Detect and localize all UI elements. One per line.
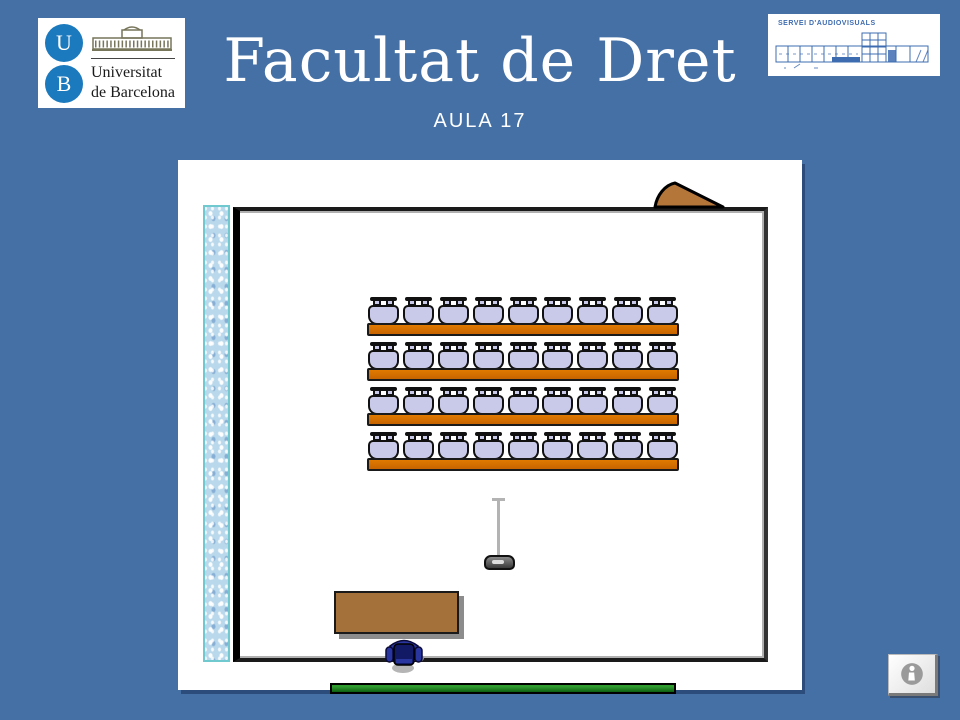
teacher-desk: [334, 591, 459, 634]
slide: { "header": { "ub_logo": { "initials": […: [0, 0, 960, 720]
student-chair: [508, 342, 539, 370]
student-chair: [577, 297, 608, 325]
teacher-chair-icon: [384, 635, 424, 675]
blackboard: [330, 683, 676, 694]
student-chair: [542, 387, 573, 415]
sav-building-sketch-icon: [774, 28, 934, 72]
sav-logo: SERVEI D'AUDIOVISUALS: [768, 14, 940, 76]
student-desk: [367, 323, 679, 336]
student-chair: [542, 342, 573, 370]
student-chair: [403, 387, 434, 415]
chair-row: [368, 387, 678, 415]
student-chair: [368, 342, 399, 370]
student-chair: [368, 432, 399, 460]
door-icon: [650, 180, 728, 209]
student-desk: [367, 458, 679, 471]
window-strip: [203, 205, 230, 662]
student-chair: [647, 387, 678, 415]
classroom-walls: [233, 207, 768, 662]
student-chair: [368, 387, 399, 415]
student-chair: [647, 342, 678, 370]
student-desk: [367, 413, 679, 426]
student-chair: [612, 432, 643, 460]
student-chair: [508, 432, 539, 460]
student-chair: [577, 342, 608, 370]
info-button[interactable]: [888, 654, 938, 696]
student-chair: [438, 387, 469, 415]
student-chair: [403, 297, 434, 325]
student-chair: [403, 342, 434, 370]
student-chair: [473, 297, 504, 325]
student-chair: [438, 297, 469, 325]
student-chair: [542, 432, 573, 460]
sav-logo-label: SERVEI D'AUDIOVISUALS: [778, 20, 876, 27]
chair-row: [368, 297, 678, 325]
student-chair: [438, 342, 469, 370]
projector-pole: [497, 500, 500, 557]
projector-icon: [484, 555, 515, 570]
student-chair: [403, 432, 434, 460]
student-chair: [612, 342, 643, 370]
chair-row: [368, 342, 678, 370]
student-chair: [368, 297, 399, 325]
chair-row: [368, 432, 678, 460]
student-chair: [612, 297, 643, 325]
student-chair: [438, 432, 469, 460]
floor-plan-panel: [178, 160, 802, 690]
student-chair: [577, 432, 608, 460]
student-chair: [473, 342, 504, 370]
student-chair: [542, 297, 573, 325]
student-chair: [647, 297, 678, 325]
student-chair: [473, 387, 504, 415]
student-chair: [473, 432, 504, 460]
student-desk: [367, 368, 679, 381]
student-chair: [612, 387, 643, 415]
student-chair: [647, 432, 678, 460]
page-subtitle: AULA 17: [0, 110, 960, 133]
info-icon: [899, 661, 925, 687]
student-chair: [508, 297, 539, 325]
student-chair: [577, 387, 608, 415]
student-chair: [508, 387, 539, 415]
